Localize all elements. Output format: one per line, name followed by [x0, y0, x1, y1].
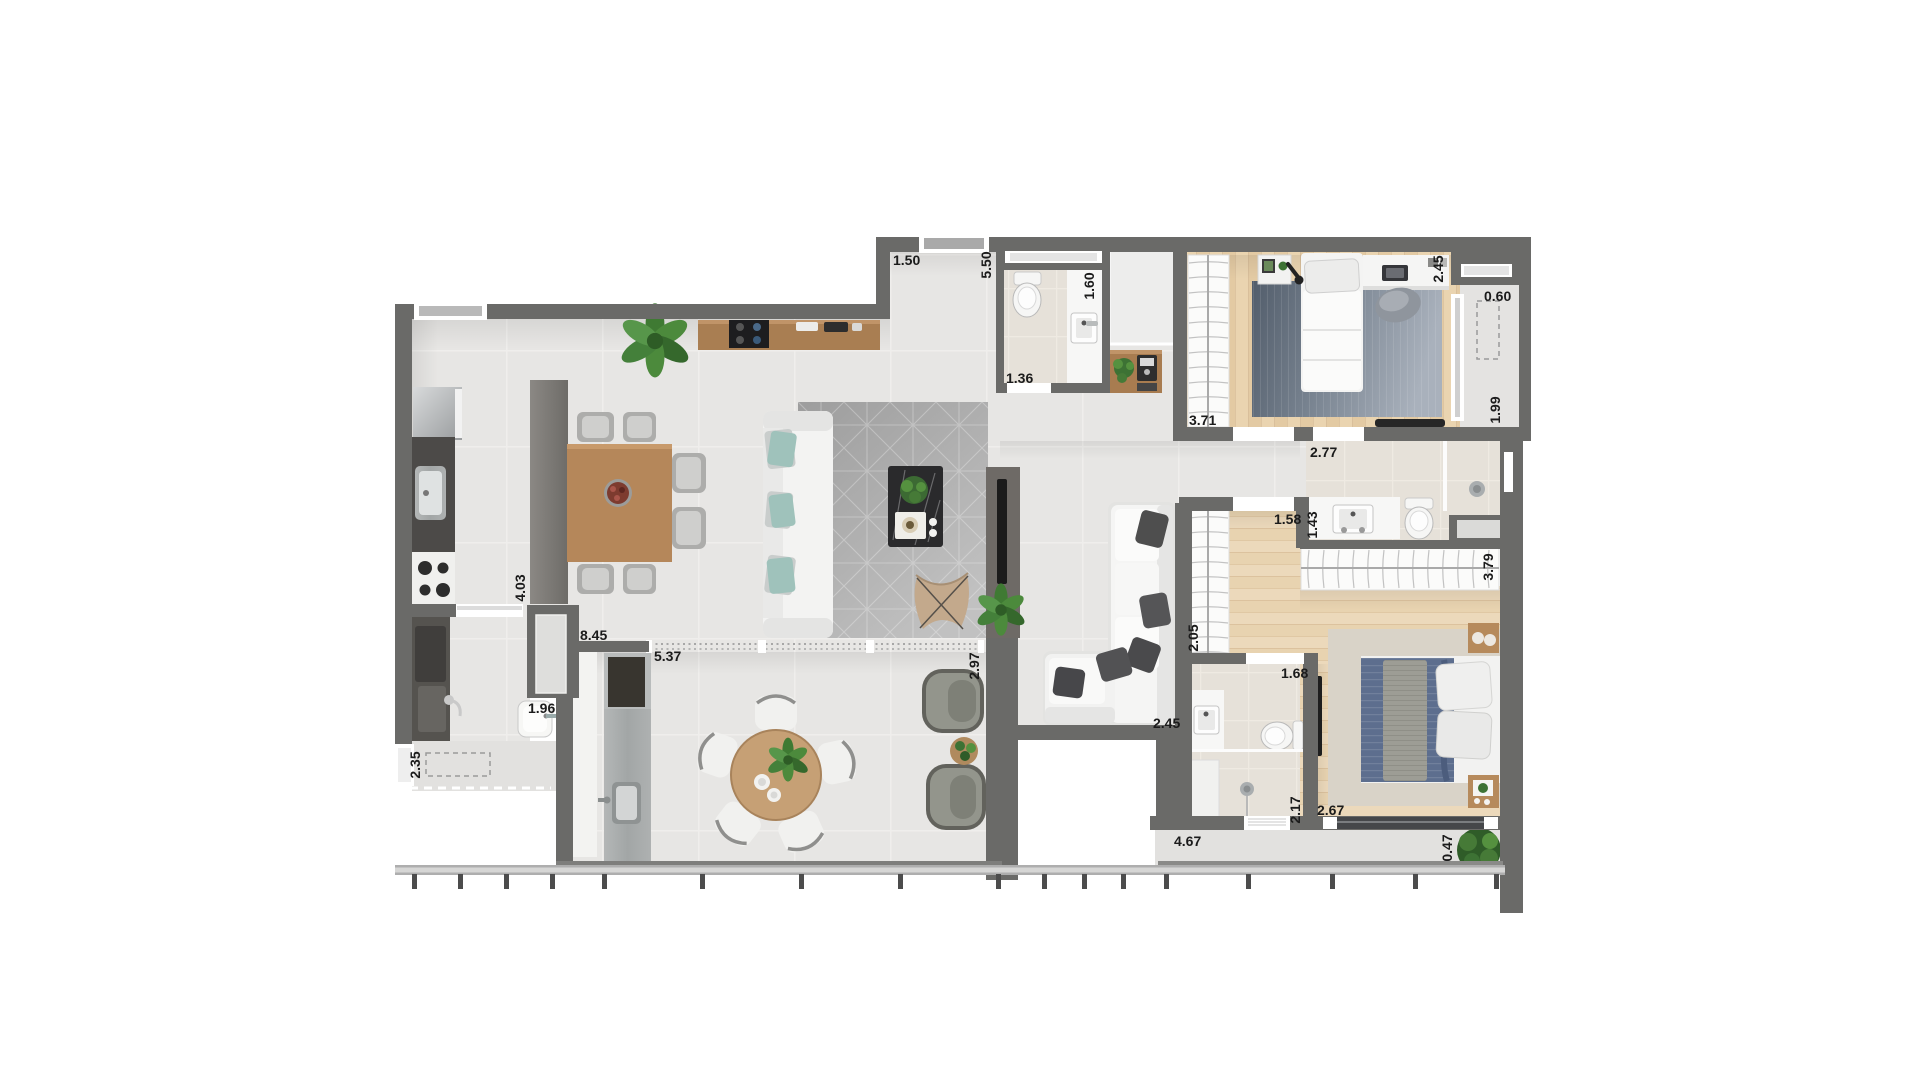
svg-text:2.67: 2.67 — [1317, 802, 1344, 818]
svg-text:2.45: 2.45 — [1430, 255, 1446, 282]
svg-text:0.47: 0.47 — [1439, 834, 1455, 861]
svg-text:0.60: 0.60 — [1484, 288, 1511, 304]
svg-text:1.43: 1.43 — [1304, 511, 1320, 538]
svg-text:2.17: 2.17 — [1287, 796, 1303, 823]
svg-text:1.96: 1.96 — [528, 700, 555, 716]
svg-text:4.67: 4.67 — [1174, 833, 1201, 849]
svg-text:1.50: 1.50 — [893, 252, 920, 268]
svg-text:1.36: 1.36 — [1006, 370, 1033, 386]
svg-text:2.97: 2.97 — [966, 652, 982, 679]
svg-text:5.37: 5.37 — [654, 648, 681, 664]
svg-text:5.50: 5.50 — [978, 251, 994, 278]
svg-text:2.45: 2.45 — [1153, 715, 1180, 731]
svg-text:2.05: 2.05 — [1185, 624, 1201, 651]
svg-text:3.79: 3.79 — [1480, 553, 1496, 580]
svg-text:1.99: 1.99 — [1487, 396, 1503, 423]
svg-text:4.03: 4.03 — [512, 574, 528, 601]
svg-text:1.60: 1.60 — [1081, 272, 1097, 299]
svg-text:1.68: 1.68 — [1281, 665, 1308, 681]
svg-text:8.45: 8.45 — [580, 627, 607, 643]
svg-text:2.35: 2.35 — [407, 751, 423, 778]
svg-text:3.71: 3.71 — [1189, 412, 1216, 428]
svg-text:1.58: 1.58 — [1274, 511, 1301, 527]
svg-text:2.77: 2.77 — [1310, 444, 1337, 460]
